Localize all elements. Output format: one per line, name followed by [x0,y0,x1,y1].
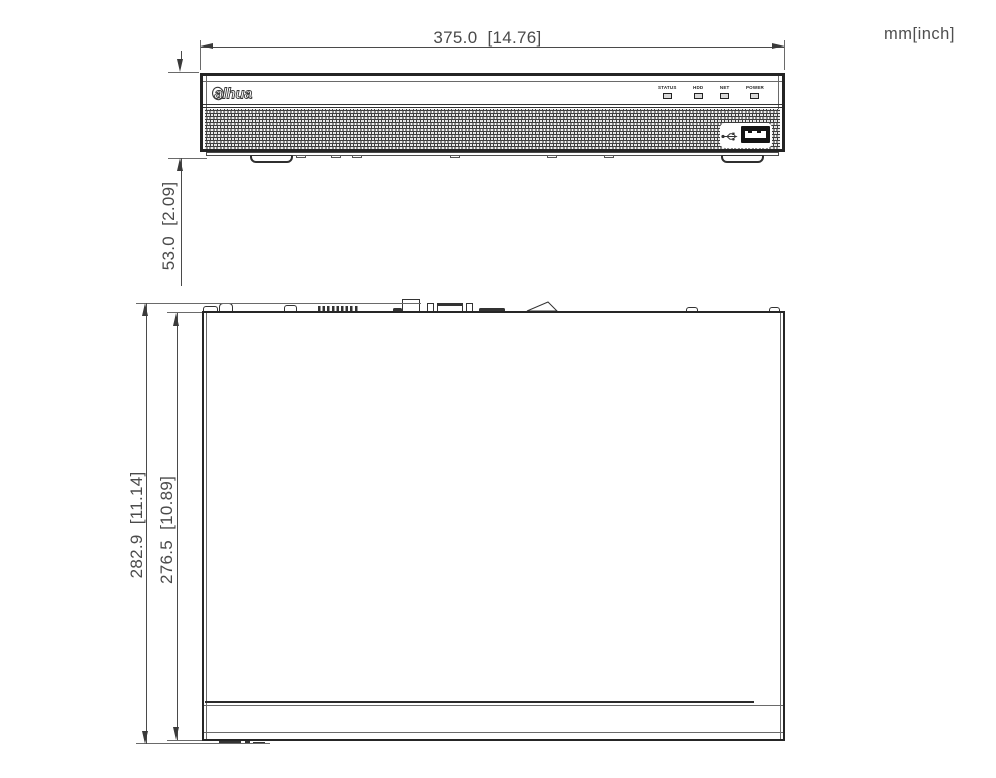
arrowhead-up-icon [173,313,179,326]
extension-line [136,303,421,304]
rear-connector [393,308,402,311]
rear-connector [219,303,233,311]
rear-power-switch [526,301,558,311]
rear-connector-usb [402,299,420,311]
rear-connector [284,305,297,311]
top-view: 282.9 [11.14] 276.5 [10.89] [0,0,996,778]
rear-connector [769,307,780,311]
arrowhead-down-icon [173,727,179,740]
front-bezel-line [204,705,783,706]
dimension-depth-body-text: 276.5 [10.89] [158,455,176,605]
arrowhead-down-icon [142,731,148,744]
extension-line [136,743,270,744]
nvr-top-body [202,311,785,741]
front-bezel-line [205,701,754,703]
arrowhead-up-icon [142,303,148,316]
rear-connector-screw [466,303,473,311]
dimension-drawing: mm[inch] 375.0 [14.76] 53.0 [2.09] [0,0,996,778]
dimension-depth-overall-text: 282.9 [11.14] [128,450,146,600]
dimension-line [177,313,178,740]
front-bezel-line [204,732,783,733]
rear-connector [203,306,218,311]
rear-terminal-block [318,306,359,311]
body-inner-line [206,313,207,739]
body-inner-line [780,313,781,739]
rear-connector [479,308,505,311]
rear-connector-vga [437,303,463,311]
extension-line [167,740,202,741]
rear-connector-screw [427,303,434,311]
rear-connector [686,307,698,311]
dimension-line [146,303,147,744]
